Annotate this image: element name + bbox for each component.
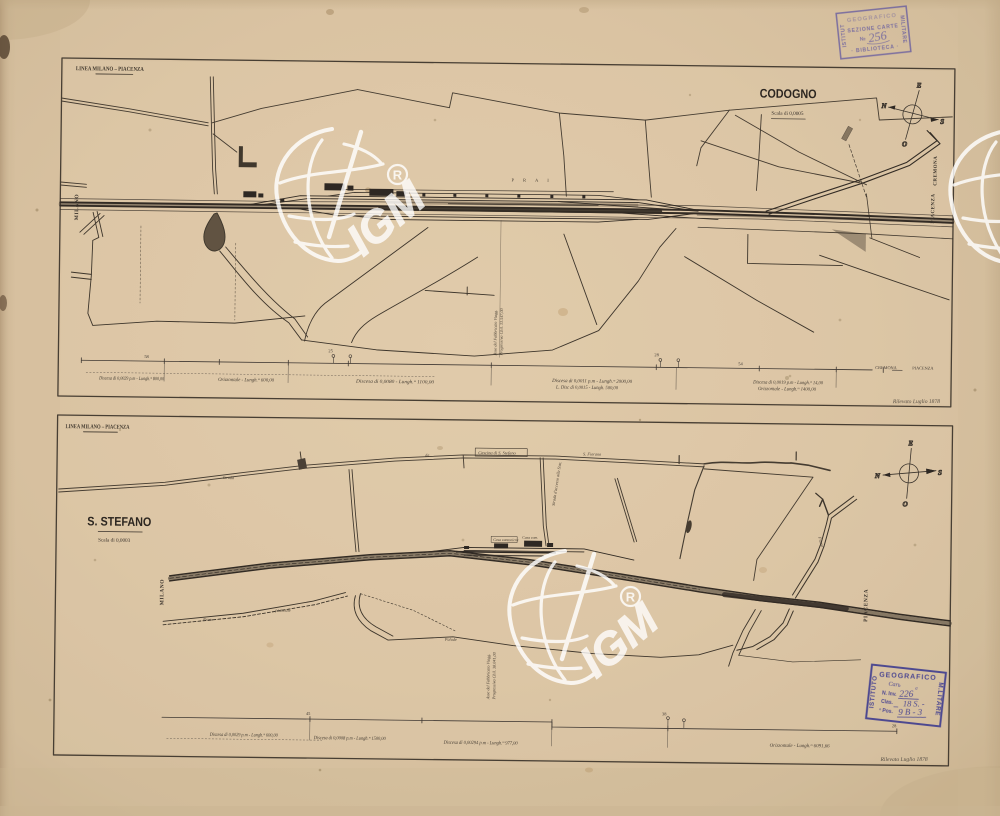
svg-text:Palude: Palude xyxy=(444,637,457,642)
svg-text:R: R xyxy=(393,168,403,183)
svg-text:Orizzontale - Lungh.ᵐ 6091,66: Orizzontale - Lungh.ᵐ 6091,66 xyxy=(770,744,831,750)
svg-text:CREMONA: CREMONA xyxy=(934,156,939,186)
svg-text:LINEA MILANO – PIACENZA: LINEA MILANO – PIACENZA xyxy=(76,66,145,73)
svg-text:Strada: Strada xyxy=(223,475,234,480)
svg-text:Discesa di 0,00294 p.m - Lungh: Discesa di 0,00294 p.m - Lungh.ᵐ 977,00 xyxy=(443,741,518,747)
svg-text:PIACENZA: PIACENZA xyxy=(931,194,936,224)
svg-text:S: S xyxy=(940,118,944,126)
svg-text:P R A I: P R A I xyxy=(512,178,553,184)
svg-text:CREMONA: CREMONA xyxy=(875,365,897,370)
svg-text:Orizzontale - Lungh.ᵐ 1400,00: Orizzontale - Lungh.ᵐ 1400,00 xyxy=(758,387,817,393)
svg-text:E: E xyxy=(916,81,922,89)
svg-text:Cascina di S. Stefano: Cascina di S. Stefano xyxy=(478,450,516,455)
svg-text:Casa cantoniera: Casa cantoniera xyxy=(493,538,518,542)
svg-text:Rilevato Luglio 1878: Rilevato Luglio 1878 xyxy=(892,399,940,405)
svg-text:Scala di 0,0003: Scala di 0,0003 xyxy=(98,537,131,543)
svg-text:N: N xyxy=(874,472,881,480)
svg-text:S: S xyxy=(938,469,942,477)
svg-text:Orizzontale - Lungh.ᵐ 600,00: Orizzontale - Lungh.ᵐ 600,00 xyxy=(218,378,275,384)
svg-text:Rilevato Luglio 1878: Rilevato Luglio 1878 xyxy=(879,757,927,763)
svg-text:R: R xyxy=(626,590,636,605)
svg-text:Casa com.: Casa com. xyxy=(522,536,538,540)
svg-text:L. Disc di 0,0015 - Lungh. 500: L. Disc di 0,0015 - Lungh. 500,00 xyxy=(555,386,618,392)
svg-text:Discesa di 0,0019 p.m - Lungh.: Discesa di 0,0019 p.m - Lungh.ᵐ 14,00 xyxy=(752,380,823,386)
svg-text:O: O xyxy=(903,500,908,508)
svg-text:Discesa di 0,0008 p.m - Lungh.: Discesa di 0,0008 p.m - Lungh.ᵐ 1500,00 xyxy=(313,736,386,742)
svg-text:PIACENZA: PIACENZA xyxy=(912,365,934,370)
svg-text:Discesa di 0,0029 p.m - Lungh.: Discesa di 0,0029 p.m - Lungh.ᵐ 600,00 xyxy=(209,733,278,739)
svg-text:Asse del Fabbricato Viagg.: Asse del Fabbricato Viagg. xyxy=(492,310,498,357)
svg-text:S. STEFANO: S. STEFANO xyxy=(87,514,151,529)
svg-text:CODOGNO: CODOGNO xyxy=(760,87,817,102)
svg-text:O: O xyxy=(902,140,907,148)
svg-text:S. Fiorano: S. Fiorano xyxy=(583,451,601,456)
svg-text:pedonale: pedonale xyxy=(274,608,291,613)
svg-text:Discesa di 0,0029 p.m - Lungh.: Discesa di 0,0029 p.m - Lungh.ᵐ 800,00 xyxy=(98,376,164,382)
svg-text:Scala di 0,0005: Scala di 0,0005 xyxy=(771,111,804,117)
svg-text:PIACENZA: PIACENZA xyxy=(863,589,869,622)
svg-text:MILANO: MILANO xyxy=(159,579,165,605)
svg-text:da: da xyxy=(425,452,429,457)
svg-text:Discesa di 0,0011 p.m - Lungh.: Discesa di 0,0011 p.m - Lungh.ᵐ 2000,00 xyxy=(551,379,633,385)
svg-text:№: № xyxy=(859,36,866,43)
svg-text:LINEA MILANO – PIACENZA: LINEA MILANO – PIACENZA xyxy=(65,424,130,431)
svg-text:Asse del Fabbricato Viagg.: Asse del Fabbricato Viagg. xyxy=(485,654,491,701)
svg-text:Discesa di 0,0080 - Lungh.ᵐ 11: Discesa di 0,0080 - Lungh.ᵐ 1100,00 xyxy=(355,380,435,386)
svg-text:9 B - 3: 9 B - 3 xyxy=(898,707,922,717)
svg-text:MILANO: MILANO xyxy=(74,194,80,220)
svg-text:E: E xyxy=(907,439,913,447)
svg-text:N: N xyxy=(880,102,887,110)
svg-text:Prato: Prato xyxy=(202,617,213,622)
